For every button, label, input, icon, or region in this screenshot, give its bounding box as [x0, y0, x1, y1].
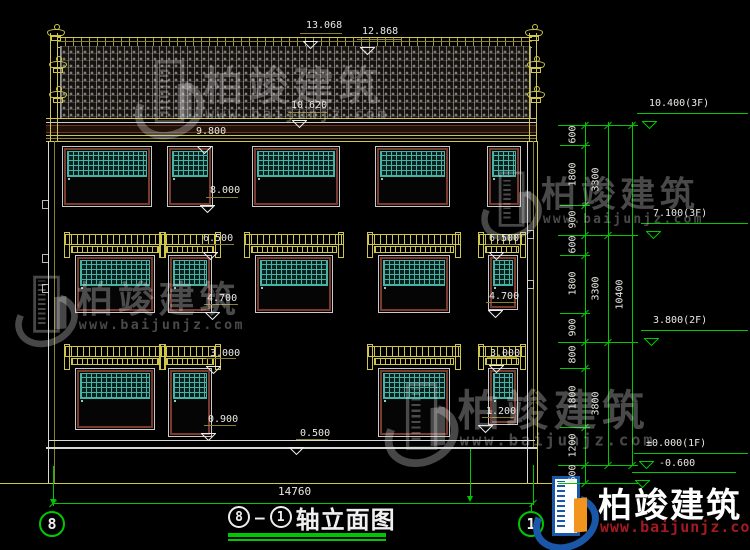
canopy-tiles [64, 234, 166, 245]
canopy-bracket-left [64, 344, 70, 370]
gable-finial [48, 56, 68, 72]
window-pane [384, 400, 386, 402]
axis-arrow [50, 499, 56, 505]
window-frame [169, 148, 211, 205]
watermark-name: 柏竣建筑 [457, 376, 650, 438]
window-lattice [67, 151, 147, 177]
window [375, 146, 450, 207]
logo-building-small [574, 497, 587, 532]
gable-finial [526, 56, 546, 72]
window-canopy [367, 232, 461, 257]
finial-cap [527, 61, 545, 68]
elevation-label: 13.068 [306, 20, 342, 31]
elevation-triangle [303, 34, 318, 42]
dim-value: 3300 [591, 268, 602, 308]
watermark-glyph [484, 172, 536, 233]
elevation-triangle [360, 40, 375, 48]
window-canopy [367, 344, 461, 369]
watermark-glyph [18, 276, 71, 339]
elevation-triangle [489, 245, 504, 253]
watermark: 柏竣建筑www.baijunjz.com [138, 54, 411, 136]
window-panes [257, 177, 335, 202]
elevation-triangle [200, 198, 215, 206]
canopy-bracket-right [455, 344, 461, 370]
dim-value: 10400 [615, 275, 626, 315]
canopy-bracket-left [367, 232, 373, 258]
watermark-url: www.baijunjz.com [460, 432, 656, 450]
logo-building-windows [557, 481, 565, 527]
window-pane [81, 400, 83, 402]
watermark: 柏竣建筑www.baijunjz.com [18, 270, 265, 344]
window-pane [381, 178, 383, 180]
elevation-label: 6.500 [203, 233, 233, 244]
canopy-bracket-left [367, 344, 373, 370]
canopy-beam [71, 246, 159, 253]
logo-building-small [431, 407, 446, 446]
elevation-label: 8.000 [210, 185, 240, 196]
window-lattice [173, 373, 207, 399]
window-frame [254, 148, 338, 205]
canopy-beam [374, 358, 454, 365]
title-text: 轴立面图 [296, 500, 396, 535]
elevation-triangle [289, 440, 304, 448]
window-pane [68, 178, 70, 180]
window-lattice [80, 373, 150, 399]
dim-value: 1800 [568, 264, 579, 304]
window-panes [260, 286, 328, 308]
window-lattice [172, 151, 208, 177]
finial-cap [49, 91, 67, 98]
watermark-glyph [388, 383, 451, 457]
finial-base [529, 36, 539, 41]
gable-finial [526, 86, 546, 102]
canopy-bracket-right [338, 232, 344, 258]
title-axis-start: 8 [228, 506, 250, 528]
elevation-triangle [206, 359, 221, 367]
watermark-name: 柏竣建筑 [77, 270, 240, 322]
window-frame [64, 148, 150, 205]
canopy-bracket-left [64, 232, 70, 258]
window-canopy [64, 232, 166, 257]
elevation-label: 12.868 [362, 26, 398, 37]
axis-line [533, 465, 534, 505]
window-canopy [64, 344, 166, 369]
elevation-triangle [197, 139, 212, 147]
elevation-label: 0.500 [300, 428, 330, 439]
logo-building-small [178, 83, 192, 120]
watermark-glyph [138, 60, 197, 129]
elevation-label: 0.900 [208, 414, 238, 425]
watermark: 柏竣建筑www.baijunjz.com [484, 166, 723, 238]
window-lattice [383, 260, 445, 286]
dim-value: 600 [568, 115, 579, 155]
title-underline-thin [228, 539, 386, 541]
window-frame [257, 257, 331, 311]
finial-cap [49, 61, 67, 68]
elevation-label: 4.700 [489, 291, 519, 302]
window-lattice [260, 260, 328, 286]
axis-line [531, 503, 532, 512]
dim-value: 800 [568, 335, 579, 375]
logo-building-small [54, 296, 66, 329]
finial-cap [527, 91, 545, 98]
elevation-triangle [635, 473, 650, 481]
window-lattice [380, 151, 445, 177]
canopy-tiles [64, 346, 166, 357]
window-panes [380, 177, 445, 202]
canopy-beam [374, 246, 454, 253]
wall-mark [42, 254, 49, 263]
canopy-beam [71, 358, 159, 365]
finial-base [53, 68, 63, 73]
watermark-name: 柏竣建筑 [203, 54, 384, 112]
watermark: 柏竣建筑www.baijunjz.com [388, 376, 679, 463]
window-pane [174, 400, 176, 402]
window [255, 255, 333, 313]
logo-building-windows [38, 280, 46, 324]
brand-logo-glyph [536, 476, 596, 546]
elevation-triangle [489, 358, 504, 366]
window-frame [377, 148, 448, 205]
canopy-bracket-left [244, 232, 250, 258]
window-frame [380, 257, 448, 311]
elevation-triangle [488, 303, 503, 311]
window-panes [67, 177, 147, 202]
gable-finial [524, 24, 544, 40]
overall-dimension: 14760 [278, 485, 311, 498]
axis-arrow [467, 496, 473, 502]
canopy-tiles [367, 234, 461, 245]
window-frame [77, 370, 153, 428]
watermark-url: www.baijunjz.com [543, 212, 704, 227]
finial-base [51, 36, 61, 41]
window-lattice [257, 151, 335, 177]
elevation-triangle [642, 114, 657, 122]
gable-finial [48, 86, 68, 102]
watermark-url: www.baijunjz.com [205, 107, 389, 124]
window-panes [80, 399, 150, 425]
logo-building-small [519, 191, 531, 223]
title-underline-thick [228, 533, 386, 537]
logo-building-windows [160, 66, 168, 114]
window-pane [173, 178, 175, 180]
canopy-beam [251, 246, 337, 253]
watermark-url: www.baijunjz.com [79, 318, 245, 333]
finial-base [53, 98, 63, 103]
elevation-triangle [201, 426, 216, 434]
wall-mark [527, 280, 534, 289]
logo-building-windows [412, 388, 421, 440]
window [378, 255, 450, 313]
window [62, 146, 152, 207]
logo-building-windows [503, 176, 510, 218]
gable-finial [46, 24, 66, 40]
canopy-bracket-left [159, 344, 165, 370]
title-axis-dash: – [255, 508, 265, 527]
brand-url: www.baijunjz.com [600, 518, 750, 536]
window [252, 146, 340, 207]
window-canopy [244, 232, 344, 257]
window-pane [494, 287, 496, 289]
title-axis-end: 1 [270, 506, 292, 528]
window-pane [258, 178, 260, 180]
finial-cap [525, 29, 543, 36]
elevation-triangle [203, 245, 218, 253]
ground-line [0, 483, 612, 484]
drawing-title: 8 – 1 轴立面图 [228, 502, 396, 532]
window [75, 368, 155, 430]
elevation-triangle [644, 331, 659, 339]
drawing-stage: 14760 8 1 8 – 1 轴立面图 柏竣建筑 www.baijunjz.c… [0, 0, 750, 550]
wall-mark [42, 200, 49, 209]
canopy-tiles [244, 234, 344, 245]
window-lattice [493, 260, 513, 286]
finial-cap [47, 29, 65, 36]
canopy-bracket-right [520, 344, 526, 370]
canopy-tiles [367, 346, 461, 357]
finial-base [531, 98, 541, 103]
canopy-bracket-right [455, 232, 461, 258]
finial-base [531, 68, 541, 73]
window-panes [383, 286, 445, 308]
elevation-label: 10.400(3F) [649, 98, 709, 109]
elevation-label: 3.800(2F) [653, 315, 707, 326]
watermark-name: 柏竣建筑 [541, 166, 699, 217]
axis-bubble-8: 8 [39, 511, 65, 537]
bottom-dim-line [53, 503, 533, 504]
window-pane [384, 287, 386, 289]
canopy-bracket-left [478, 344, 484, 370]
canopy-bracket-left [159, 232, 165, 258]
